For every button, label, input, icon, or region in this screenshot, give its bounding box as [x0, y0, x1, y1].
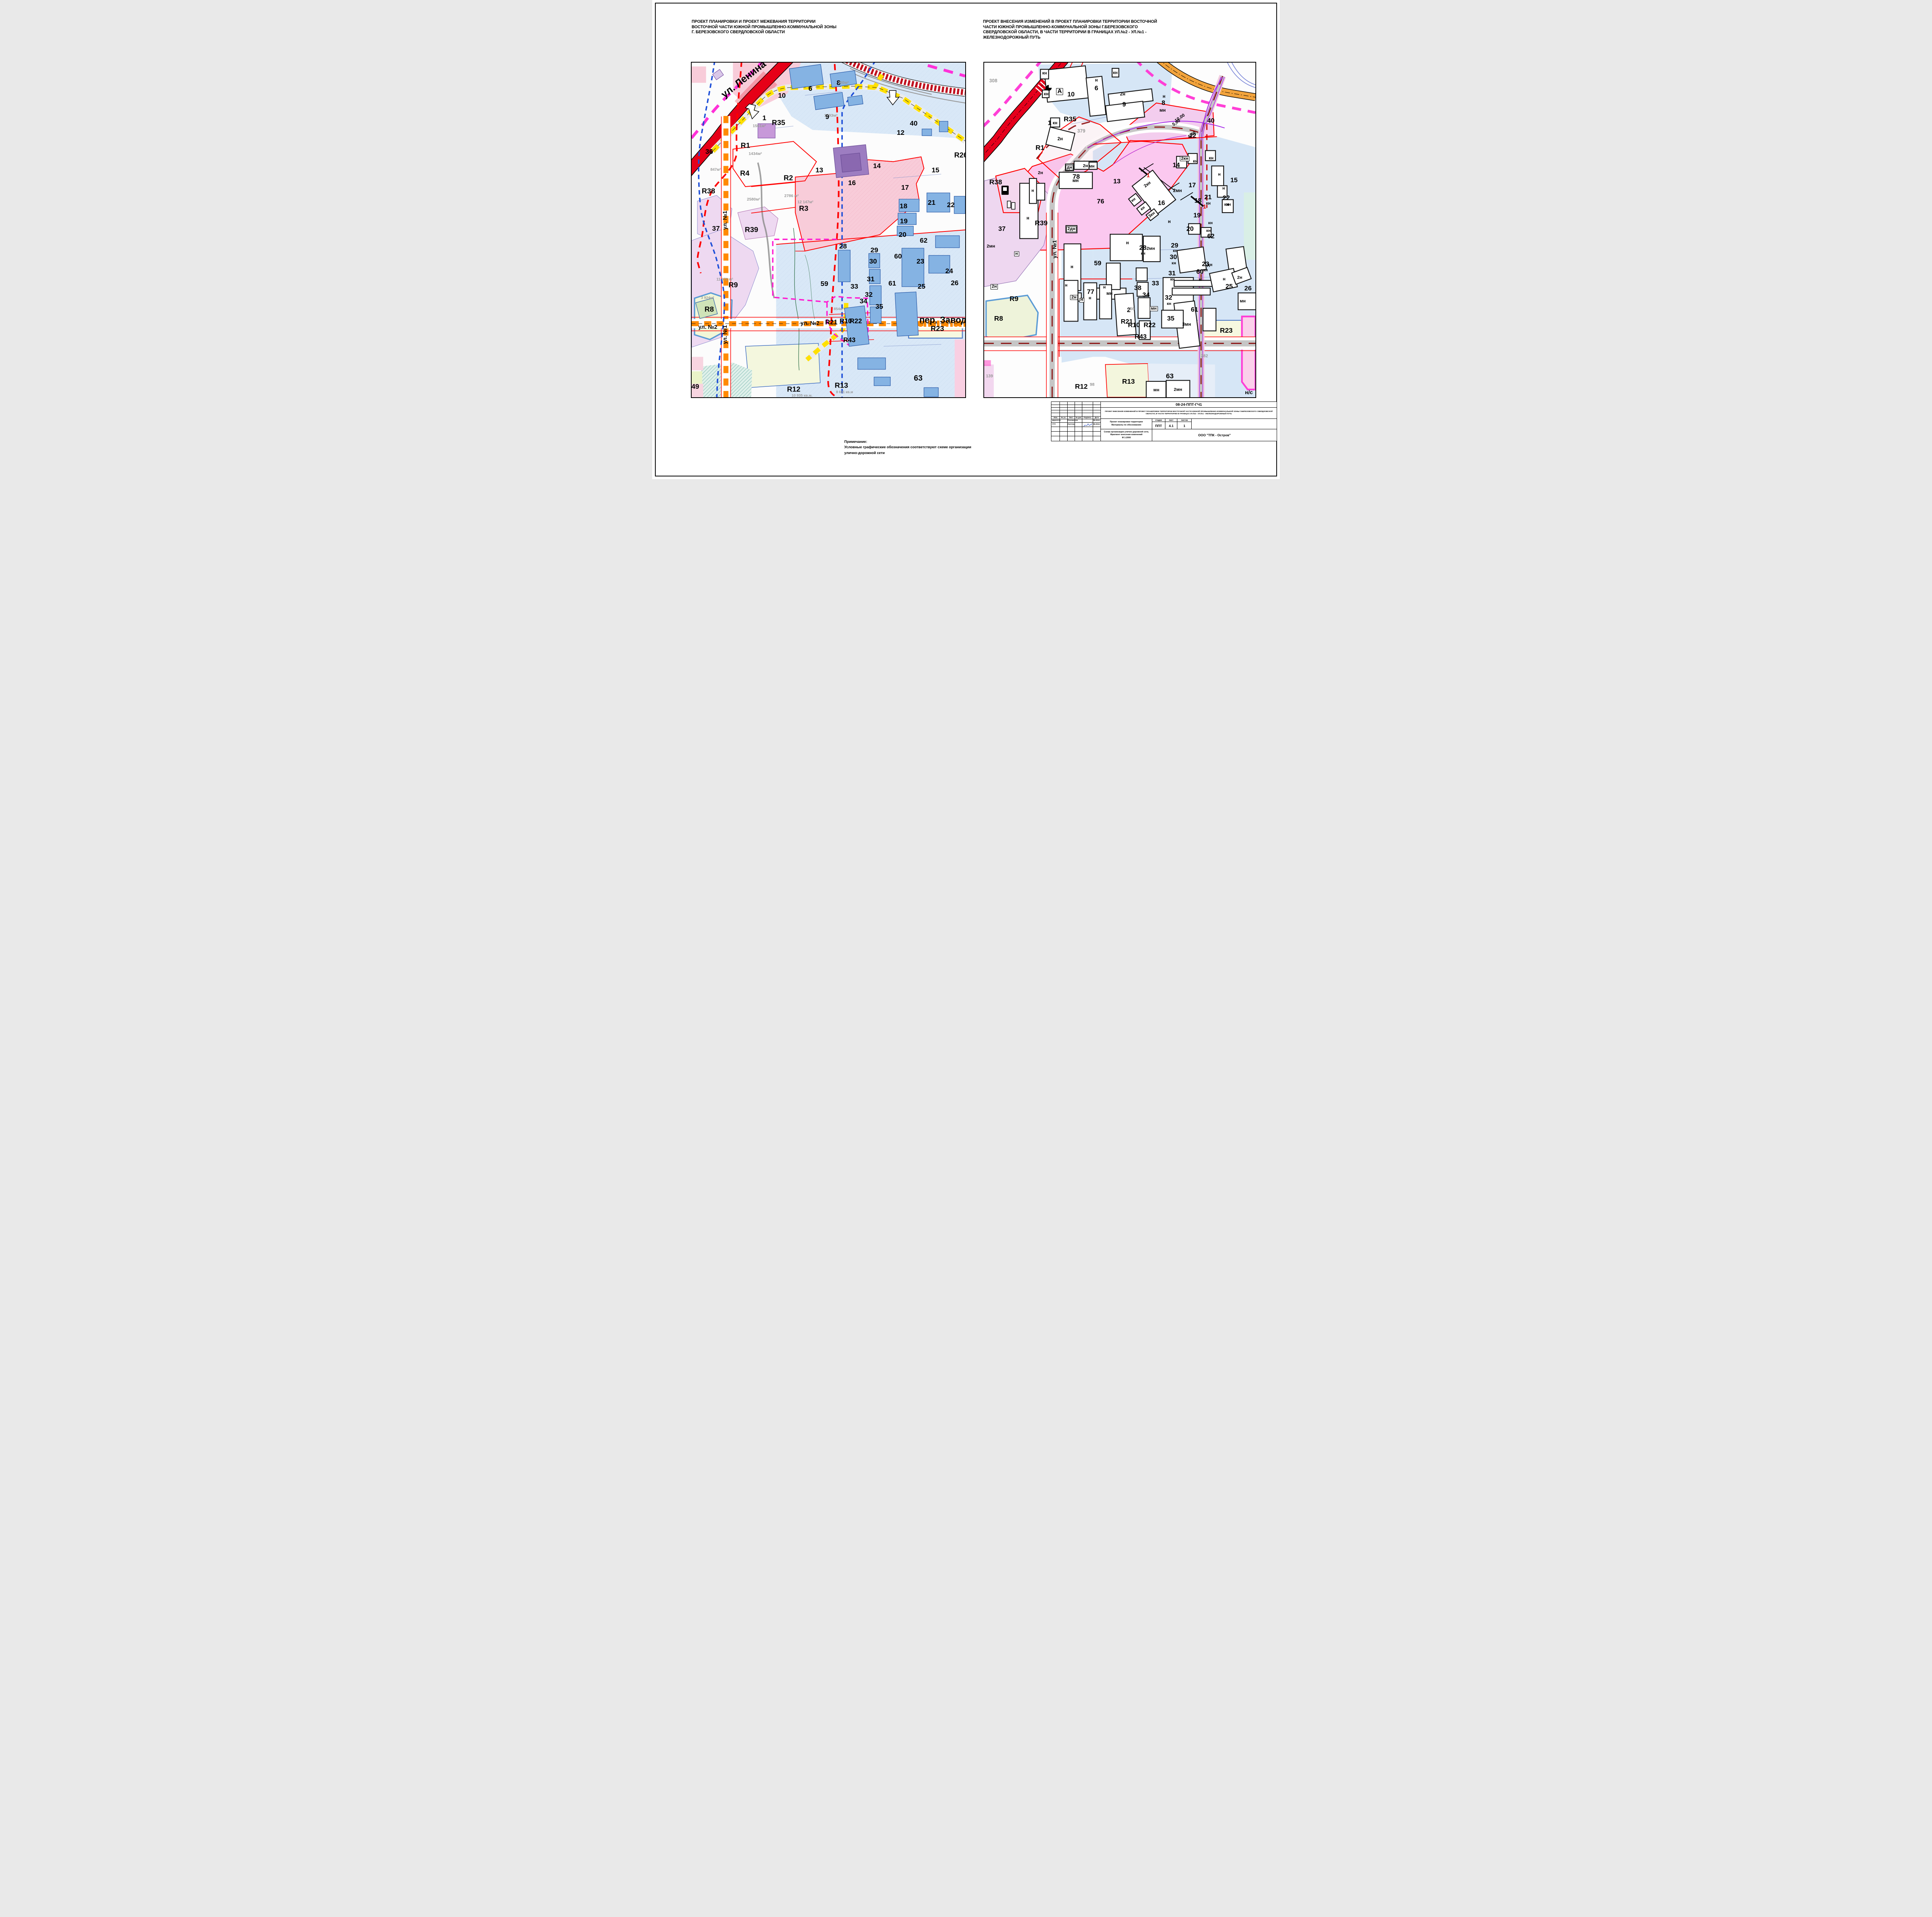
col-dok: № док — [1075, 417, 1082, 419]
map-label: 20 — [899, 231, 906, 238]
revision-table: Изм. № уч. Лист № док Подпись Дата Дирек… — [1051, 402, 1101, 441]
map-label: 28 — [839, 243, 847, 250]
map-label: 379 — [1077, 129, 1085, 133]
map-label: 60 — [1196, 269, 1204, 275]
map-label: 60 — [894, 253, 902, 260]
map-label: мн — [1160, 108, 1166, 113]
map-label: 12 147м² — [798, 201, 813, 204]
map-label: 8 — [1162, 100, 1165, 106]
map-label: н — [1071, 265, 1073, 269]
empty-cell — [1192, 419, 1277, 429]
doc-code: 08-24-ППТ-ГЧ1 — [1101, 402, 1277, 408]
left-map[interactable]: ул. Ленина106891R35R1401213R21415R2636R4… — [691, 62, 966, 398]
map-label: 17 — [1189, 182, 1196, 189]
row-date: 08.2024 — [1093, 424, 1100, 425]
col-uch: № уч. — [1060, 417, 1067, 419]
map-label: н/с — [1245, 390, 1253, 395]
map-label: 2кн — [1180, 156, 1190, 161]
right-map[interactable]: А106981R35R1401213147815R3837R397659R9R8… — [983, 62, 1256, 398]
map-label: 3 924м² — [701, 296, 714, 299]
map-label: 2580м² — [747, 197, 760, 201]
map-label: R26 — [954, 151, 966, 159]
map-label: 22 — [1223, 195, 1230, 201]
map-label: 35 — [876, 303, 883, 310]
sheet-value: 4.1 — [1165, 422, 1178, 429]
map-label: R39 — [1035, 220, 1048, 227]
map-label: 10 — [778, 92, 786, 99]
right-map-title: ПРОЕКТ ВНЕСЕНИЯ ИЗМЕНЕНИЙ В ПРОЕКТ ПЛАНИ… — [983, 19, 1223, 40]
map-label: мн — [1153, 388, 1159, 392]
map-label: н — [1168, 219, 1171, 224]
map-label: ул. №1 — [723, 211, 728, 230]
map-label: 40 — [1207, 118, 1214, 124]
map-label: R13 — [1122, 378, 1135, 385]
map-label: мн — [1106, 291, 1112, 296]
sheet-title: Проект планировки территории Материалы п… — [1101, 419, 1152, 429]
map-label: 20 — [1186, 226, 1194, 233]
map-label: 2786 м² — [784, 194, 799, 198]
map-label: 49 — [691, 383, 699, 390]
map-label: 14 — [873, 163, 881, 170]
drawing-sheet: ПРОЕКТ ПЛАНИРОВКИ И ПРОЕКТ МЕЖЕВАНИЯ ТЕР… — [652, 0, 1280, 479]
map-label: R35 — [1064, 116, 1077, 123]
map-label: R9 — [1010, 296, 1019, 303]
map-label: 1793м² — [824, 114, 837, 118]
map-label: 62 — [920, 237, 927, 244]
company: ООО "ТПК - Остров" — [1152, 429, 1277, 441]
map-label: кн — [1053, 121, 1057, 125]
project-name: ПРОЕКТ ВНЕСЕНИЯ ИЗМЕНЕНИЙ В ПРОЕКТ ПЛАНИ… — [1101, 408, 1277, 419]
map-label: 61 — [1191, 307, 1198, 313]
map-label: н — [1027, 216, 1029, 221]
left-map-title: ПРОЕКТ ПЛАНИРОВКИ И ПРОЕКТ МЕЖЕВАНИЯ ТЕР… — [692, 19, 854, 35]
map-label: мн — [1089, 165, 1095, 169]
map-label: R35 — [772, 119, 786, 126]
map-label: 24 — [946, 268, 953, 275]
map-label: 6 — [808, 85, 812, 92]
map-label: 31 — [1168, 270, 1176, 277]
map-label: кн — [1209, 156, 1213, 160]
map-label: н — [1065, 284, 1068, 288]
map-label: 2мн — [1173, 189, 1182, 193]
map-label: 1434м² — [749, 152, 762, 156]
map-label: 8 601 кв.м — [836, 391, 853, 394]
map-label: R43 — [1135, 333, 1147, 340]
map-label: 847м² — [710, 168, 721, 172]
map-label: 37 — [712, 225, 720, 232]
stage-value: ППТ — [1152, 422, 1165, 429]
map-label: н — [1095, 78, 1098, 83]
map-label: 33 — [850, 283, 858, 290]
map-label: R23 — [1220, 327, 1233, 334]
map-label: R38 — [989, 179, 1002, 186]
map-label: 9 — [1122, 102, 1126, 108]
sheets-label: листов — [1177, 419, 1191, 422]
map-label: 59 — [821, 281, 828, 287]
map-label: кн — [1173, 249, 1177, 253]
map-label: кн — [1208, 221, 1213, 225]
map-label: н — [1126, 241, 1129, 245]
map-label: 38 — [1134, 285, 1141, 292]
stamp-right: 08-24-ППТ-ГЧ1 ПРОЕКТ ВНЕСЕНИЯ ИЗМЕНЕНИЙ … — [1101, 402, 1277, 441]
row-role: ГГП — [1052, 424, 1067, 425]
map-label: 29 — [871, 247, 878, 254]
map-label: 16 — [1158, 200, 1165, 207]
map-label: 63 — [914, 374, 923, 382]
map-label: R22 — [850, 318, 862, 324]
map-label: R22 — [1144, 322, 1156, 328]
map-label: 29 — [1171, 242, 1178, 249]
map-label: кн — [1167, 302, 1172, 306]
stage-label: стадия — [1152, 419, 1165, 422]
map-label: R23 — [931, 325, 944, 333]
row-date: 08.2024 — [1093, 420, 1100, 422]
map-label: кн — [1113, 71, 1117, 75]
map-label: н — [1163, 94, 1165, 99]
map-label: 26 — [1244, 285, 1252, 292]
map-label: н — [1199, 277, 1201, 282]
map-label: н — [1103, 286, 1106, 290]
map-label: R10 — [1128, 322, 1140, 328]
map-label: Н — [1079, 298, 1084, 303]
map-label: 21 — [928, 199, 935, 206]
row-role: Директор — [1052, 420, 1067, 422]
map-label: 28 — [1139, 245, 1146, 251]
map-label: 2мн — [1174, 388, 1182, 392]
map-label: 15 — [1230, 177, 1238, 184]
col-izm: Изм. — [1052, 417, 1060, 419]
map-label: н — [1089, 296, 1092, 300]
map-label: R43 — [843, 337, 855, 343]
map-label: кн — [1224, 202, 1229, 207]
map-label: 77 — [1087, 289, 1094, 296]
map-label: н — [1014, 252, 1019, 257]
map-label: дн — [1066, 165, 1073, 170]
map-label: R4 — [740, 170, 749, 177]
map-label: R3 — [799, 205, 808, 212]
map-label: 59 — [1094, 260, 1101, 267]
map-label: мн — [1072, 179, 1078, 183]
map-label: 2н — [1083, 164, 1088, 168]
map-label: 21 — [1204, 194, 1212, 201]
map-label: 13 — [815, 167, 823, 174]
map-label: 1 — [762, 115, 766, 122]
map-label: ул. №2 — [698, 325, 717, 330]
map-label: н — [1223, 187, 1225, 191]
map-label: R39 — [745, 226, 758, 234]
map-label: 26 — [951, 280, 959, 287]
map-label: 380м² — [838, 81, 849, 85]
map-label: ул. №1 — [1052, 240, 1058, 258]
title-block: Изм. № уч. Лист № док Подпись Дата Дирек… — [1051, 401, 1277, 441]
map-label: 14 — [1173, 162, 1180, 168]
map-label: R12 — [787, 386, 801, 393]
sheet-label: лист — [1165, 419, 1178, 422]
map-label: 13 — [1113, 178, 1121, 185]
map-label: 63 — [1166, 373, 1173, 380]
map-label: кн — [1172, 262, 1176, 265]
signature — [1083, 422, 1092, 428]
map-label: 76 — [1097, 199, 1104, 205]
map-label: 2н — [1237, 276, 1242, 280]
map-label: 25 — [1226, 283, 1233, 290]
map-label: дн — [1207, 263, 1213, 267]
map-label: н — [1223, 277, 1226, 281]
map-label: 30 — [1170, 254, 1177, 261]
map-label: 2н — [1070, 295, 1078, 300]
map-label: 30 — [869, 258, 877, 265]
map-label: 37 — [998, 226, 1006, 233]
map-label: кн — [1042, 71, 1047, 75]
map-label: 2н — [990, 284, 998, 289]
map-label: ул. №2 — [801, 321, 820, 326]
map-label: 33 — [1152, 281, 1159, 287]
map-label: 40 — [910, 120, 918, 127]
map-label: 11 972 м² — [716, 278, 733, 282]
map-label: 2н — [1120, 92, 1126, 97]
map-label: R1 — [741, 142, 750, 149]
map-label: 3мн — [1182, 322, 1191, 327]
map-label: н — [1031, 189, 1034, 193]
map-label: кн — [1203, 269, 1208, 272]
map-label: 15 — [932, 167, 939, 174]
map-label: 19 — [900, 218, 908, 225]
map-label: 31 — [867, 276, 874, 283]
map-label: 22 — [947, 202, 955, 209]
map-label: 34 — [1143, 292, 1150, 299]
map-label: 10 935 кв.м. — [792, 393, 813, 397]
map-label: 282 — [1201, 354, 1208, 358]
row-name: Лаптева — [1068, 424, 1082, 425]
map-label: 32 — [1165, 294, 1172, 301]
map-label: 18 — [1194, 197, 1202, 204]
map-label: 139 — [986, 374, 993, 379]
map-label: R9 — [729, 281, 738, 289]
map-label: R13 — [835, 382, 848, 390]
row-name: Пономарев — [1068, 420, 1082, 422]
map-label: R1 — [1036, 145, 1044, 151]
map-label: 10 — [1067, 91, 1075, 98]
map-label: 2дн — [1066, 227, 1077, 232]
map-label: кн — [1170, 277, 1175, 281]
note: Примечание: Условные графические обознач… — [844, 439, 971, 456]
scheme-title: Схема организации улично-дорожной сети, … — [1101, 429, 1152, 441]
map-label: 2мн — [987, 244, 995, 248]
map-label: 2н — [1038, 171, 1043, 175]
map-label: 17 — [901, 184, 909, 191]
map-label: 61 — [888, 280, 896, 287]
map-label: мн — [1240, 299, 1245, 303]
map-label: 36 — [706, 148, 713, 155]
map-label: 16 — [848, 180, 856, 187]
map-label: 308 — [989, 78, 997, 83]
stage-table: стадия лист листов ППТ 4.1 1 — [1152, 419, 1192, 429]
map-label: 1 — [1048, 120, 1051, 126]
map-label: 854м² — [834, 307, 844, 310]
map-label: 25 — [918, 283, 925, 290]
map-label: А — [1056, 88, 1063, 95]
map-label: 18 — [900, 203, 907, 210]
map-label: ул. №1 — [723, 325, 728, 344]
map-label: 1 — [1146, 173, 1150, 179]
map-label: R2 — [784, 174, 793, 182]
col-date: Дата — [1093, 417, 1100, 419]
map-label: 1561м² — [753, 124, 766, 128]
map-label: кн — [1206, 229, 1211, 233]
map-label: 2н — [1058, 137, 1063, 141]
map-label: 34 — [860, 298, 867, 305]
map-label: 6 — [1095, 85, 1098, 92]
map-label: R38 — [702, 188, 715, 195]
map-label: 62 — [1207, 233, 1214, 240]
map-label: 19 — [1193, 212, 1201, 219]
map-label: кн — [1206, 202, 1211, 206]
map-label: 23 — [917, 258, 924, 265]
map-label: кн — [1141, 252, 1145, 256]
map-label: 2мн — [1146, 247, 1155, 251]
col-list: Лист — [1068, 417, 1075, 419]
map-label: кн — [1193, 160, 1197, 164]
right-map-canvas — [984, 63, 1255, 397]
map-label: 12 — [897, 129, 905, 136]
map-label: R8 — [704, 306, 714, 313]
map-label: R12 — [1075, 383, 1088, 390]
map-label: кн — [1044, 92, 1049, 96]
map-label: 98 — [1090, 383, 1094, 387]
map-label: 35 — [1167, 315, 1175, 322]
map-label: R8 — [994, 315, 1003, 322]
map-label: мн — [1150, 306, 1158, 311]
map-label: пер. Завод — [919, 315, 966, 324]
map-label: 856 — [1128, 307, 1134, 311]
map-label: 1 — [1203, 204, 1206, 210]
map-label: R21 — [825, 319, 838, 325]
map-label: н — [1218, 172, 1221, 177]
col-sign: Подпись — [1082, 417, 1093, 419]
sheets-value: 1 — [1177, 422, 1191, 429]
